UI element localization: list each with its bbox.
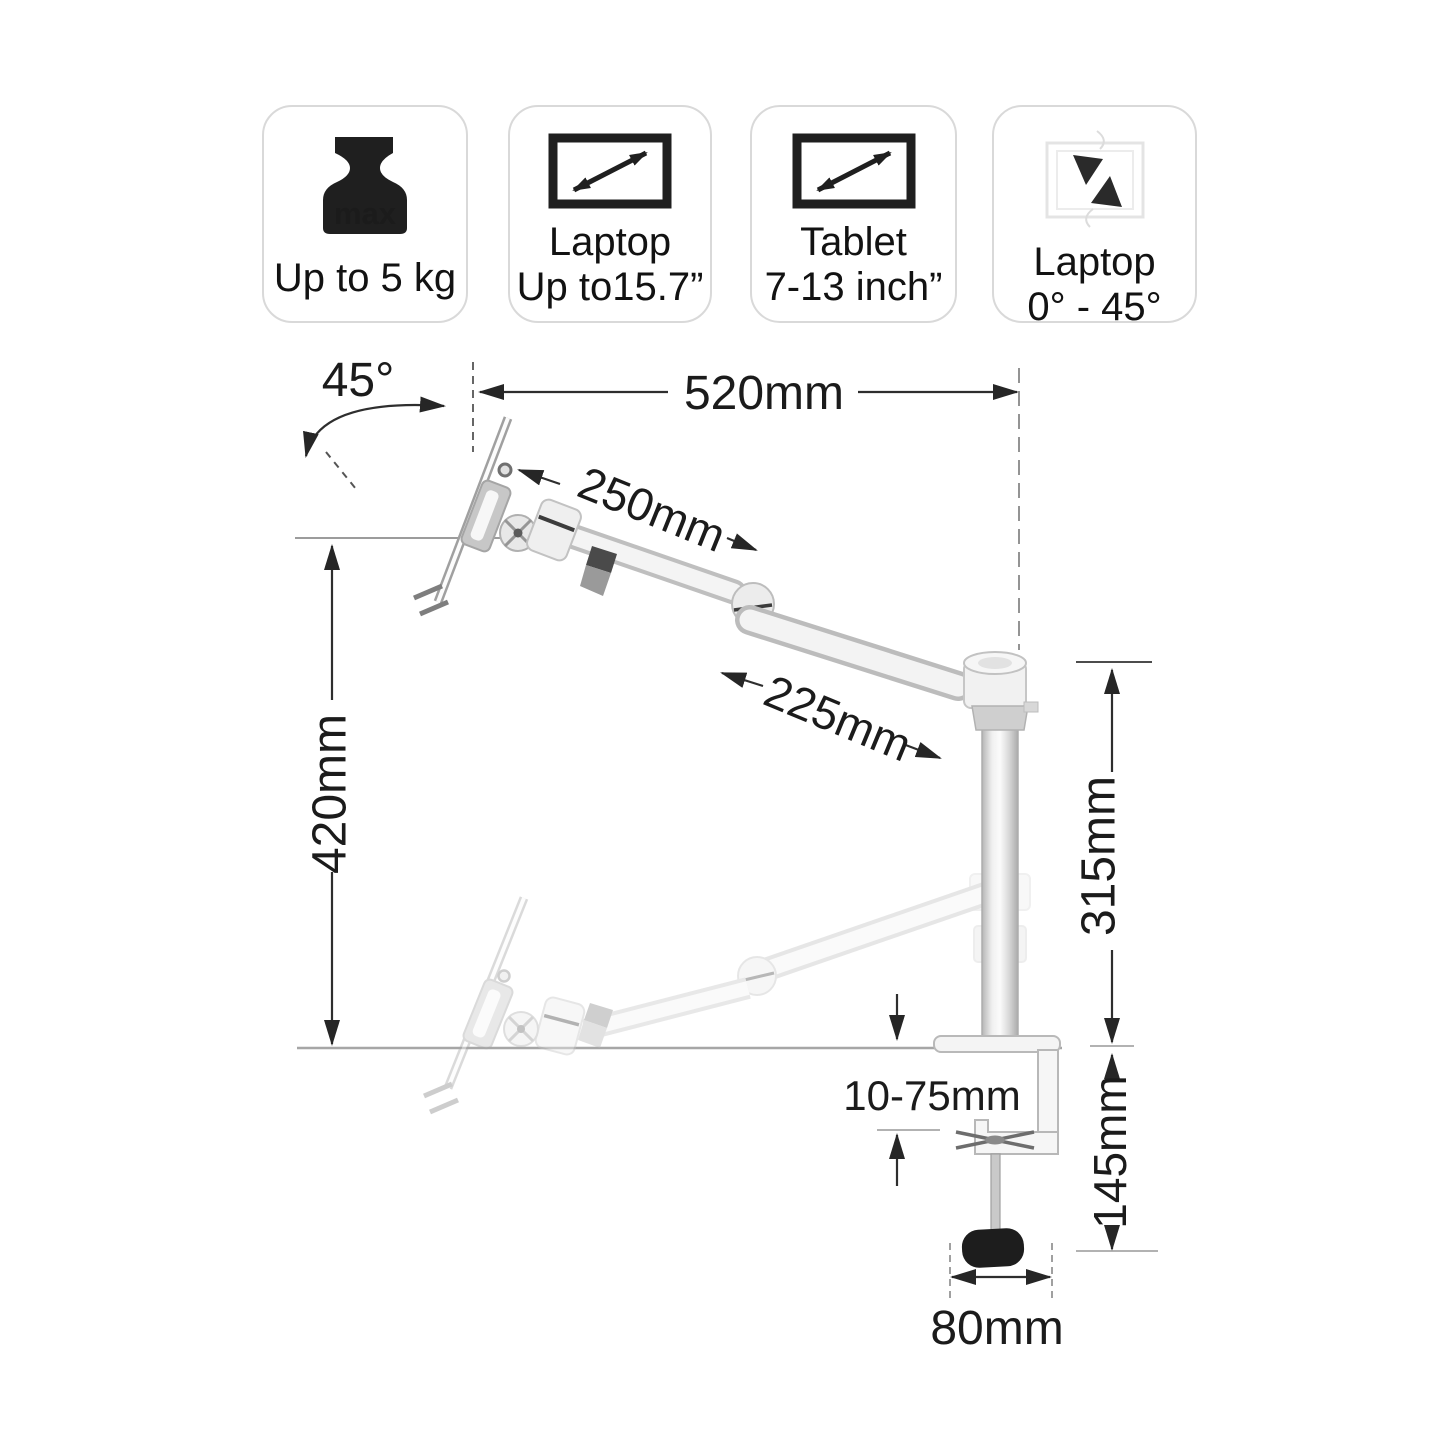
support-pole (964, 652, 1038, 1042)
tray-top-hook (499, 464, 511, 476)
total-reach-label: 520mm (684, 367, 844, 420)
laptop-tray (414, 418, 583, 614)
clamp-knob (961, 1227, 1025, 1268)
desk-clamp (934, 1036, 1060, 1269)
tray-arm-joint (525, 497, 584, 562)
clamp-height-label: 145mm (1084, 1075, 1136, 1228)
pole-height-label: 315mm (1073, 776, 1126, 936)
clamp-screw (991, 1154, 1000, 1232)
product-spec-image: max Up to 5 kg Laptop Up to15.7” (0, 0, 1445, 1445)
lift-height-dimension: 420mm (304, 546, 357, 1044)
clamp-height-dimension: 145mm (1076, 1055, 1158, 1251)
pole-height-dimension: 315mm (1073, 662, 1153, 1046)
tilt-angle-label: 45° (322, 354, 395, 407)
arm-raised (414, 418, 958, 686)
lift-height-label: 420mm (304, 714, 357, 874)
dimension-diagram: 45° 520mm 250mm 225mm 420mm (0, 0, 1445, 1445)
pole-collar (972, 706, 1028, 730)
clamp-width-label: 80mm (930, 1302, 1063, 1355)
desk-thickness-label: 10-75mm (843, 1072, 1020, 1119)
tilt-angle-dimension: 45° (306, 354, 473, 489)
